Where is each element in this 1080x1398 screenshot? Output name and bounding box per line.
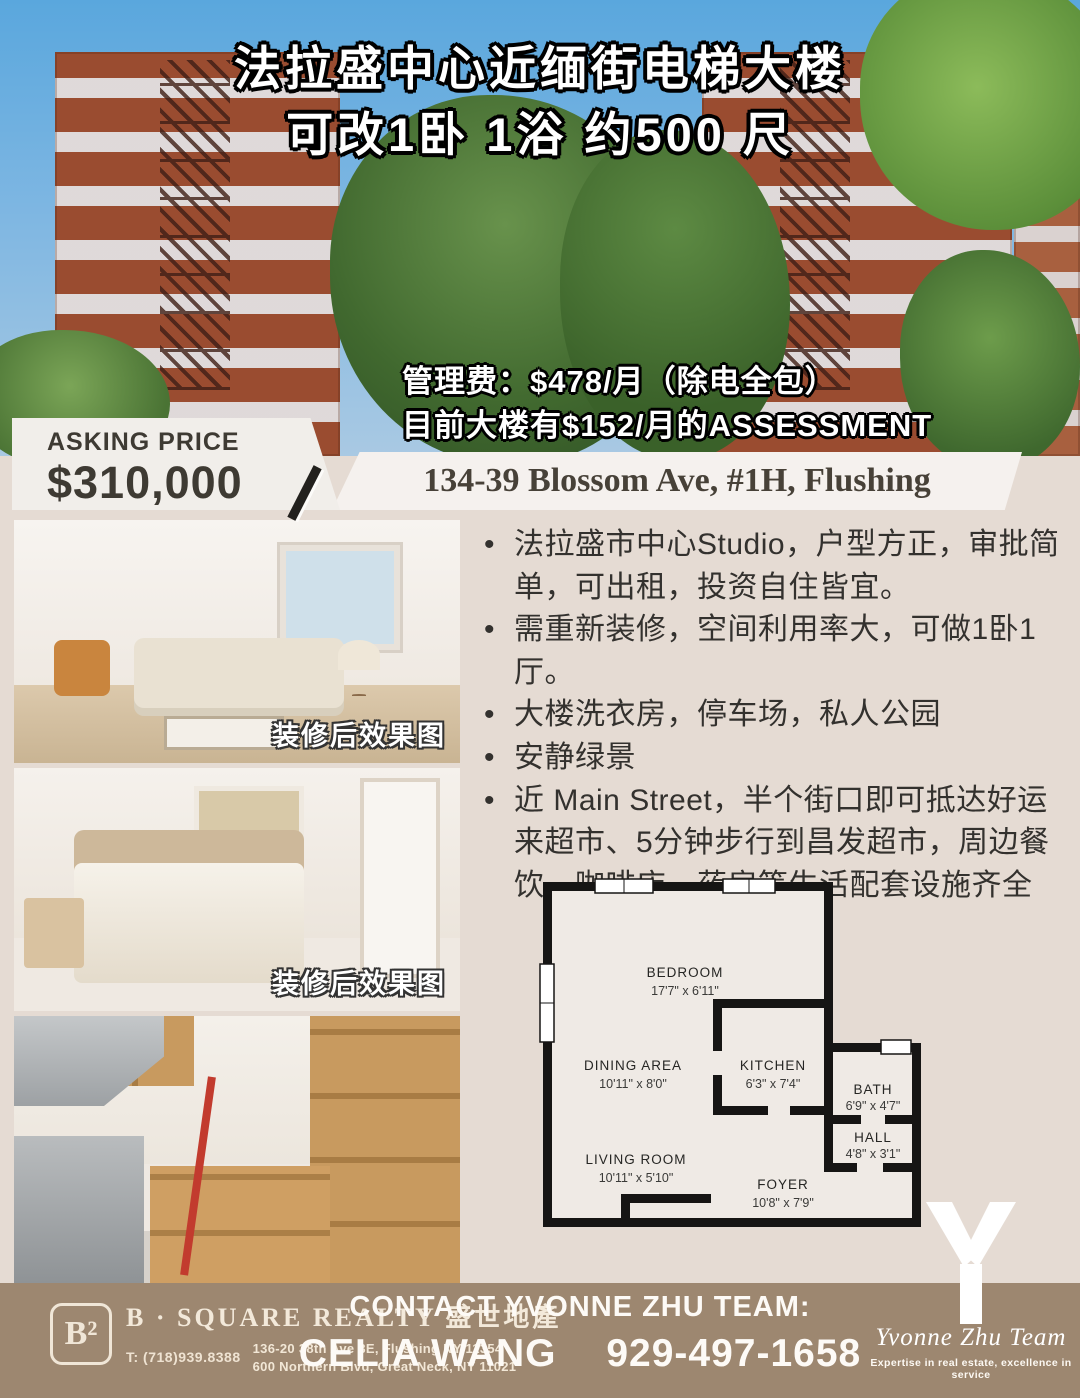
bullet-item: 需重新装修，空间利用率大，可做1卧1厅。 — [478, 609, 1074, 694]
asking-price-label: ASKING PRICE — [47, 428, 340, 457]
team-script-name: Yvonne Zhu Team — [868, 1324, 1074, 1352]
room-dims: 10'11" x 8'0" — [599, 1077, 667, 1091]
headline-line2: 可改1卧 1浴 约500 尺 — [0, 96, 1080, 165]
bsquare-logo-icon: B² — [50, 1303, 112, 1365]
kitchen-photo — [14, 1016, 460, 1285]
room-label: FOYER — [757, 1177, 809, 1192]
yvonne-zhu-team-logo: Yvonne Zhu Team Expertise in real estate… — [868, 1198, 1074, 1394]
team-tagline: Expertise in real estate, excellence in … — [868, 1357, 1074, 1381]
bullet-item: 安静绿景 — [478, 737, 1074, 780]
room-dims: 17'7" x 6'11" — [651, 984, 719, 998]
room-dims: 10'11" x 5'10" — [599, 1171, 674, 1185]
agent-name: CELIA WANG — [299, 1332, 557, 1375]
room-label: HALL — [854, 1130, 892, 1145]
agent-line: CELIA WANG 929-497-1658 — [295, 1332, 865, 1376]
photo-detail — [338, 640, 380, 670]
property-address: 134-39 Blossom Ave, #1H, Flushing — [423, 462, 931, 500]
photo-detail — [54, 640, 110, 696]
photo-detail — [150, 1166, 330, 1285]
room-label: DINING AREA — [584, 1058, 682, 1073]
room-dims: 6'9" x 4'7" — [846, 1099, 901, 1113]
contact-heading: CONTACT YVONNE ZHU TEAM: — [295, 1291, 865, 1324]
agent-phone: 929-497-1658 — [606, 1332, 861, 1375]
room-dims: 10'8" x 7'9" — [752, 1196, 814, 1210]
address-banner: 134-39 Blossom Ave, #1H, Flushing — [332, 452, 1022, 510]
brokerage-phone: T: (718)939.8388 — [126, 1349, 241, 1365]
room-label: LIVING ROOM — [585, 1152, 686, 1167]
room-label: KITCHEN — [740, 1058, 806, 1073]
bedroom-photo: 装修后效果图 — [14, 768, 460, 1011]
photo-detail — [74, 863, 304, 983]
hero-building-photo: 法拉盛中心近缅街电梯大楼 可改1卧 1浴 约500 尺 管理费：$478/月（除… — [0, 0, 1080, 456]
living-room-photo: 装修后效果图 — [14, 520, 460, 763]
bullet-item: 大楼洗衣房，停车场，私人公园 — [478, 694, 1074, 737]
photo-detail — [164, 716, 284, 750]
maintenance-fee-line: 管理费：$478/月（除电全包） — [402, 356, 837, 401]
y-monogram-icon — [916, 1198, 1026, 1328]
room-dims: 6'3" x 7'4" — [746, 1077, 801, 1091]
photo-detail — [14, 1136, 144, 1285]
flyer-page: 法拉盛中心近缅街电梯大楼 可改1卧 1浴 约500 尺 管理费：$478/月（除… — [0, 0, 1080, 1398]
photo-detail — [280, 545, 400, 650]
asking-price-badge: ASKING PRICE $310,000 — [12, 418, 340, 510]
bullet-item: 法拉盛市中心Studio，户型方正，审批简单，可出租，投资自住皆宜。 — [478, 524, 1074, 609]
photo-detail — [24, 898, 84, 968]
feature-bullet-list: 法拉盛市中心Studio，户型方正，审批简单，可出租，投资自住皆宜。 需重新装修… — [478, 524, 1074, 907]
photo-caption-rendering: 装修后效果图 — [272, 714, 446, 753]
floor-plan-drawing: BEDROOM 17'7" x 6'11" DINING AREA 10'11"… — [533, 872, 935, 1248]
contact-block: CONTACT YVONNE ZHU TEAM: CELIA WANG 929-… — [295, 1291, 865, 1376]
headline-line1: 法拉盛中心近缅街电梯大楼 — [0, 30, 1080, 99]
assessment-line: 目前大楼有$152/月的ASSESSMENT — [402, 400, 932, 445]
room-dims: 4'8" x 3'1" — [846, 1147, 901, 1161]
photo-detail — [134, 638, 344, 708]
room-label: BEDROOM — [647, 965, 724, 980]
photo-caption-rendering: 装修后效果图 — [272, 962, 446, 1001]
photo-detail — [310, 1016, 460, 1285]
room-label: BATH — [853, 1082, 892, 1097]
photo-detail — [360, 778, 440, 978]
floor-plan: BEDROOM 17'7" x 6'11" DINING AREA 10'11"… — [533, 872, 935, 1248]
